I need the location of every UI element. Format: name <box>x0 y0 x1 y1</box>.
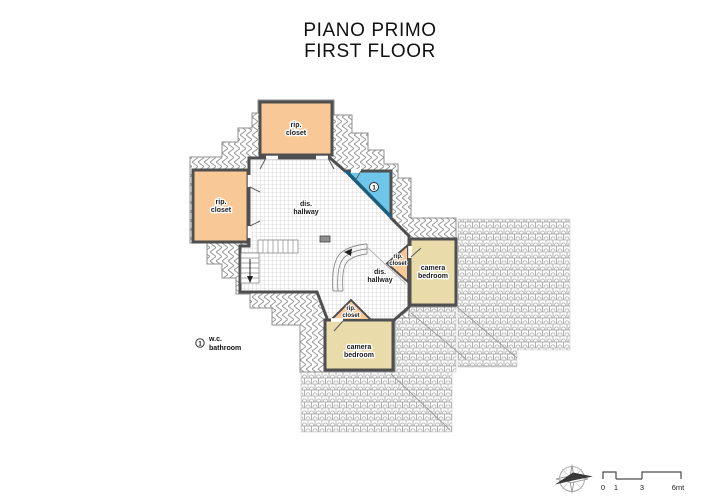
bathroom-number-marker: 1 <box>370 183 379 192</box>
svg-text:closet: closet <box>286 130 307 137</box>
svg-text:bedroom: bedroom <box>344 352 374 359</box>
scale-bar: 0 1 3 6mt <box>601 472 685 492</box>
page-title-line2: FIRST FLOOR <box>304 41 436 62</box>
scale-tick-6mt: 6mt <box>672 483 685 492</box>
svg-text:closet: closet <box>389 261 406 267</box>
roof-area-bottom <box>301 372 452 432</box>
scale-tick-3: 3 <box>640 483 644 492</box>
svg-text:bedroom: bedroom <box>418 273 448 280</box>
label-bedroom-right: camera <box>421 265 446 272</box>
label-hallway-upper: dis. <box>300 201 312 208</box>
scale-tick-0: 0 <box>601 483 605 492</box>
label-bedroom-bottom: camera <box>347 344 372 351</box>
room-closet-left <box>193 170 248 242</box>
svg-text:hallway: hallway <box>293 209 318 216</box>
label-closet-left: rip. <box>216 199 227 206</box>
floor-plan-canvas: PIANO PRIMO FIRST FLOOR <box>0 0 705 498</box>
label-closet-bottom-small: rip. <box>346 306 356 312</box>
label-hallway-lower: dis. <box>374 269 386 276</box>
scale-tick-1: 1 <box>614 483 618 492</box>
label-closet-top: rip. <box>291 122 302 129</box>
svg-text:closet: closet <box>211 207 232 214</box>
page-title-line1: PIANO PRIMO <box>303 20 436 41</box>
floor-plan-page: PIANO PRIMO FIRST FLOOR <box>0 0 705 498</box>
compass-rose-icon <box>555 464 593 494</box>
legend: 1 w.c. bathroom <box>196 336 241 352</box>
label-closet-right-small: rip. <box>393 254 403 260</box>
roof-area-right <box>458 219 570 367</box>
room-bedroom-right <box>410 239 456 305</box>
column-marker <box>320 236 330 242</box>
svg-text:closet: closet <box>342 313 359 319</box>
legend-wc-label: w.c. <box>208 336 222 343</box>
svg-text:hallway: hallway <box>367 277 392 284</box>
legend-bathroom-label: bathroom <box>209 345 241 352</box>
